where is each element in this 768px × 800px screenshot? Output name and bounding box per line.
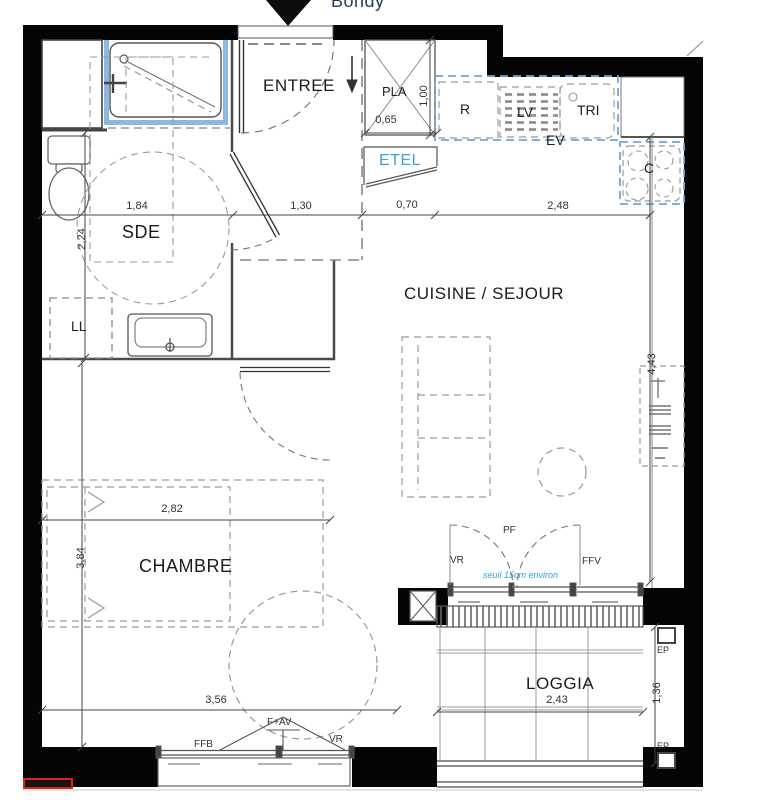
dim-entree-width: 1,30 [271,200,331,212]
column-marker [410,591,436,621]
chambre-window [156,717,354,786]
chambre-turning-circle [229,591,377,739]
label-etel: ETEL [379,152,421,170]
label-sink: EV [546,132,565,148]
dim-loggia-depth: 1,36 [651,671,663,715]
red-scale-marker [24,779,72,788]
label-ffb: FFB [194,739,213,750]
label-pf: PF [503,525,516,536]
label-fav: F+AV [267,717,292,728]
entry-threshold [238,26,333,44]
label-threshold-note: seuil 15cm environ [483,570,558,580]
sejour-furniture [402,337,586,497]
label-pla: PLA [382,84,407,99]
label-washing-machine: LL [71,318,87,334]
dim-closet-width: 0,65 [358,114,414,126]
room-label-chambre: CHAMBRE [139,556,233,577]
loggia-grating [437,606,643,627]
loggia-railing [437,761,643,787]
label-fridge: R [460,101,470,117]
duct-shaft-topright [621,77,684,137]
vanity-sink [128,314,212,356]
dim-sde-depth: 2,24 [76,217,88,261]
room-label-loggia: LOGGIA [526,674,594,694]
room-label-cuisine-sejour: CUISINE / SEJOUR [404,284,564,304]
label-tri: TRI [577,102,600,118]
chambre-door [240,368,330,461]
label-cooktop: C [644,160,654,176]
floor-plan: Bondy ENTREE SDE CUISINE / SEJOUR CHAMBR… [0,0,768,800]
entry-arrow-icon [347,56,357,92]
north-arrow-icon [266,0,311,26]
label-dishwasher: LV [517,104,533,120]
label-vr-loggia: VR [450,555,464,566]
entree-zone [240,40,362,260]
dim-chambre-width: 2,82 [142,503,202,515]
dim-chambre-depth: 3,84 [75,536,87,580]
label-ep-bottom: EP [657,741,669,751]
city-label: Bondy [331,0,385,12]
duct-shaft-topleft [42,40,107,130]
label-ep-top: EP [657,645,669,655]
dim-sejour-depth: 4,43 [646,342,658,386]
dim-sde-width: 1,84 [107,200,167,212]
room-label-entree: ENTREE [263,76,335,96]
dim-kitchen-width: 2,48 [528,200,588,212]
dim-passage-width: 0,70 [377,199,437,211]
dimension-lines [38,36,659,767]
toilet [48,136,90,220]
label-ffv: FFV [582,556,601,567]
loggia-facade [448,525,643,602]
corner-chamfer [687,41,703,56]
label-vr-chambre: VR [329,734,343,745]
room-label-sde: SDE [122,222,161,243]
shower [104,40,230,128]
dim-closet-depth: 1,00 [418,74,430,118]
dim-loggia-width: 2,43 [527,694,587,706]
dim-chambre-window-span: 3,56 [186,694,246,706]
